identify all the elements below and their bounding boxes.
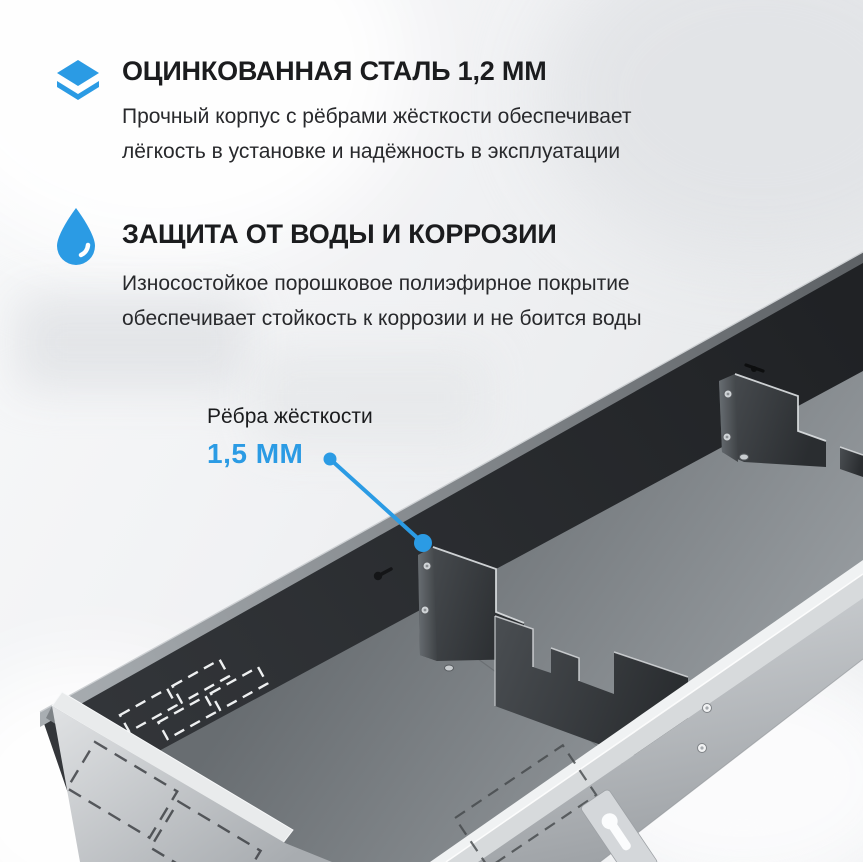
- feature-2-line-2: обеспечивает стойкость к коррозии и не б…: [122, 301, 642, 336]
- product-infographic: ОЦИНКОВАННАЯ СТАЛЬ 1,2 ММ Прочный корпус…: [0, 0, 863, 862]
- feature-1-title: ОЦИНКОВАННАЯ СТАЛЬ 1,2 ММ: [122, 56, 546, 87]
- feature-2-title: ЗАЩИТА ОТ ВОДЫ И КОРРОЗИИ: [122, 219, 557, 250]
- feature-2-line-1: Износостойкое порошковое полиэфирное пок…: [122, 266, 642, 301]
- callout-label: Рёбра жёсткости: [207, 405, 373, 429]
- water-drop-icon: [55, 207, 97, 270]
- feature-2-description: Износостойкое порошковое полиэфирное пок…: [122, 266, 642, 336]
- callout-value: 1,5 ММ: [207, 438, 303, 470]
- floor-rivet: [445, 665, 454, 671]
- floor-rivet: [740, 454, 749, 460]
- feature-1-line-1: Прочный корпус с рёбрами жёсткости обесп…: [122, 99, 632, 134]
- layers-icon: [55, 56, 101, 107]
- feature-1-line-2: лёгкость в установке и надёжность в эксп…: [122, 134, 632, 169]
- feature-1-description: Прочный корпус с рёбрами жёсткости обесп…: [122, 99, 632, 169]
